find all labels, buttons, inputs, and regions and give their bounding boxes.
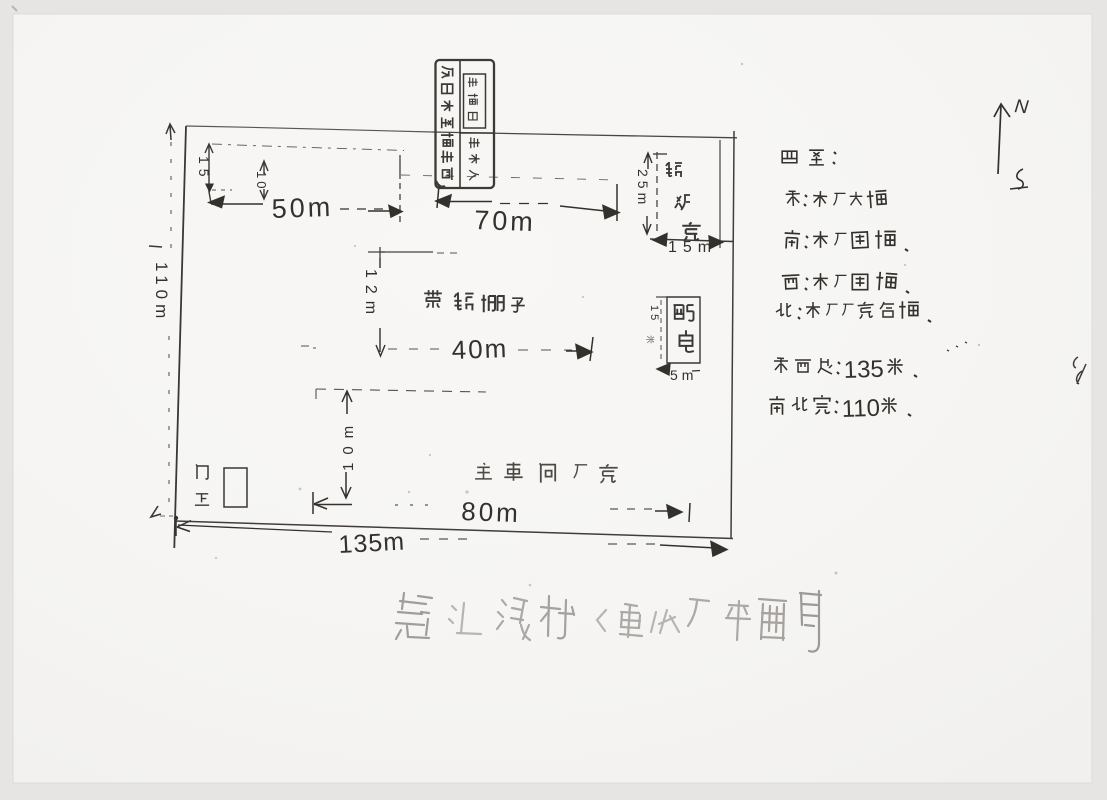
svg-text:12m: 12m (362, 269, 379, 321)
svg-text:5m: 5m (670, 367, 697, 383)
svg-text:15: 15 (196, 156, 212, 182)
svg-text:10m: 10m (340, 418, 357, 471)
svg-text:70m: 70m (474, 205, 537, 237)
svg-text:135m: 135m (338, 528, 406, 559)
svg-text:15: 15 (648, 305, 660, 323)
svg-text:N: N (1013, 96, 1029, 118)
svg-text:25m: 25m (635, 169, 651, 208)
svg-text:110m: 110m (152, 262, 171, 323)
svg-text:135: 135 (843, 356, 884, 384)
svg-text:15m: 15m (668, 239, 717, 256)
svg-text:10: 10 (254, 171, 269, 191)
svg-text:110: 110 (841, 395, 880, 423)
svg-text:40m: 40m (451, 333, 509, 365)
svg-text:80m: 80m (461, 496, 522, 528)
svg-text:50m: 50m (271, 192, 334, 224)
